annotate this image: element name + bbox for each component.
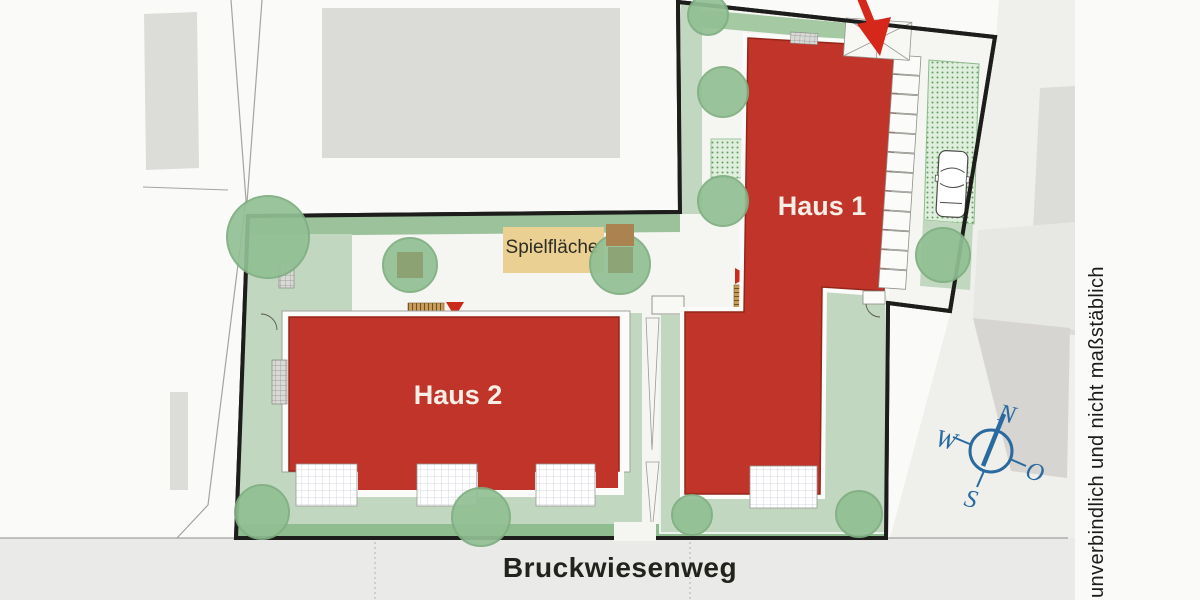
roof-detail [790,32,818,45]
shed [652,296,684,314]
neighbor-building-north [322,8,620,158]
tree [672,495,712,535]
disclaimer-text: unverbindlich und nicht maßstäblich [1086,266,1108,598]
planter-brown [606,224,634,246]
terrace [536,464,595,506]
hedge-west-dotted [711,139,742,178]
balcony-strip [272,360,287,404]
haus1-label: Haus 1 [778,191,867,221]
neighbor-building-west-south [170,392,188,490]
tree [916,228,970,282]
tree [698,176,748,226]
tree [227,196,309,278]
street-label: Bruckwiesenweg [503,552,737,583]
neighbor-building-west [144,12,199,170]
tree [688,0,728,35]
neighbor-building-east-light [973,222,1075,330]
tree-planter [397,252,423,278]
tree [235,485,289,539]
tree-planter [608,247,633,273]
haus2-building: Haus 2 [272,311,630,506]
terrace [750,466,817,508]
tree [836,491,882,537]
playground-label: Spielfläche [506,237,599,258]
tree [698,67,748,117]
terrace [296,464,357,506]
tree [452,488,510,546]
path-street-opening [614,522,656,541]
site-plan: Spielfläche Haus 2 Haus 1 [0,0,1200,600]
site-plan-svg: Spielfläche Haus 2 Haus 1 [0,0,1200,600]
haus2-label: Haus 2 [414,380,503,410]
garden-door-haus1 [863,291,885,304]
